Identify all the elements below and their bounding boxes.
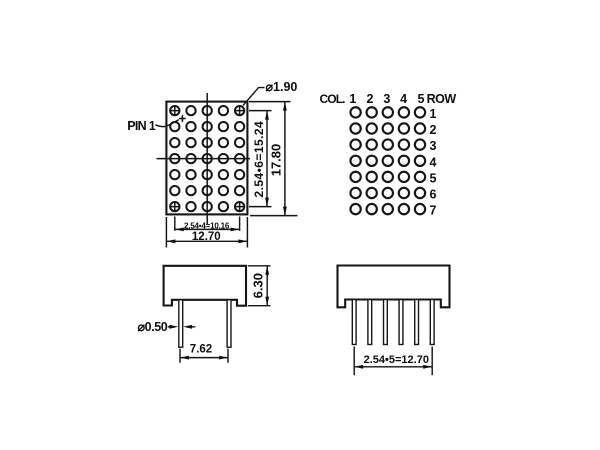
svg-text:1: 1 <box>349 92 356 106</box>
svg-text:4: 4 <box>400 92 407 106</box>
svg-text:PIN 1: PIN 1 <box>127 119 156 133</box>
svg-text:5: 5 <box>418 92 425 106</box>
svg-text:5: 5 <box>430 172 437 186</box>
svg-text:ROW: ROW <box>427 92 457 106</box>
svg-text:6: 6 <box>430 188 437 202</box>
svg-text:2: 2 <box>367 92 374 106</box>
svg-text:⌀0.50: ⌀0.50 <box>137 320 167 334</box>
svg-text:COL.: COL. <box>320 92 346 106</box>
svg-text:7.62: 7.62 <box>190 344 212 356</box>
svg-text:2.54•5=12.70: 2.54•5=12.70 <box>364 354 429 366</box>
svg-text:⌀1.90: ⌀1.90 <box>266 80 298 94</box>
svg-text:2.54•4=10.16: 2.54•4=10.16 <box>184 221 230 230</box>
svg-text:12.70: 12.70 <box>192 231 221 243</box>
svg-text:2: 2 <box>430 123 437 137</box>
svg-text:17.80: 17.80 <box>268 144 283 177</box>
svg-text:1: 1 <box>430 107 437 121</box>
svg-text:6.30: 6.30 <box>251 273 266 298</box>
svg-text:3: 3 <box>383 92 390 106</box>
svg-text:7: 7 <box>430 204 437 218</box>
svg-text:2.54•6=15.24: 2.54•6=15.24 <box>252 121 266 198</box>
svg-text:4: 4 <box>430 155 437 169</box>
svg-text:3: 3 <box>430 139 437 153</box>
